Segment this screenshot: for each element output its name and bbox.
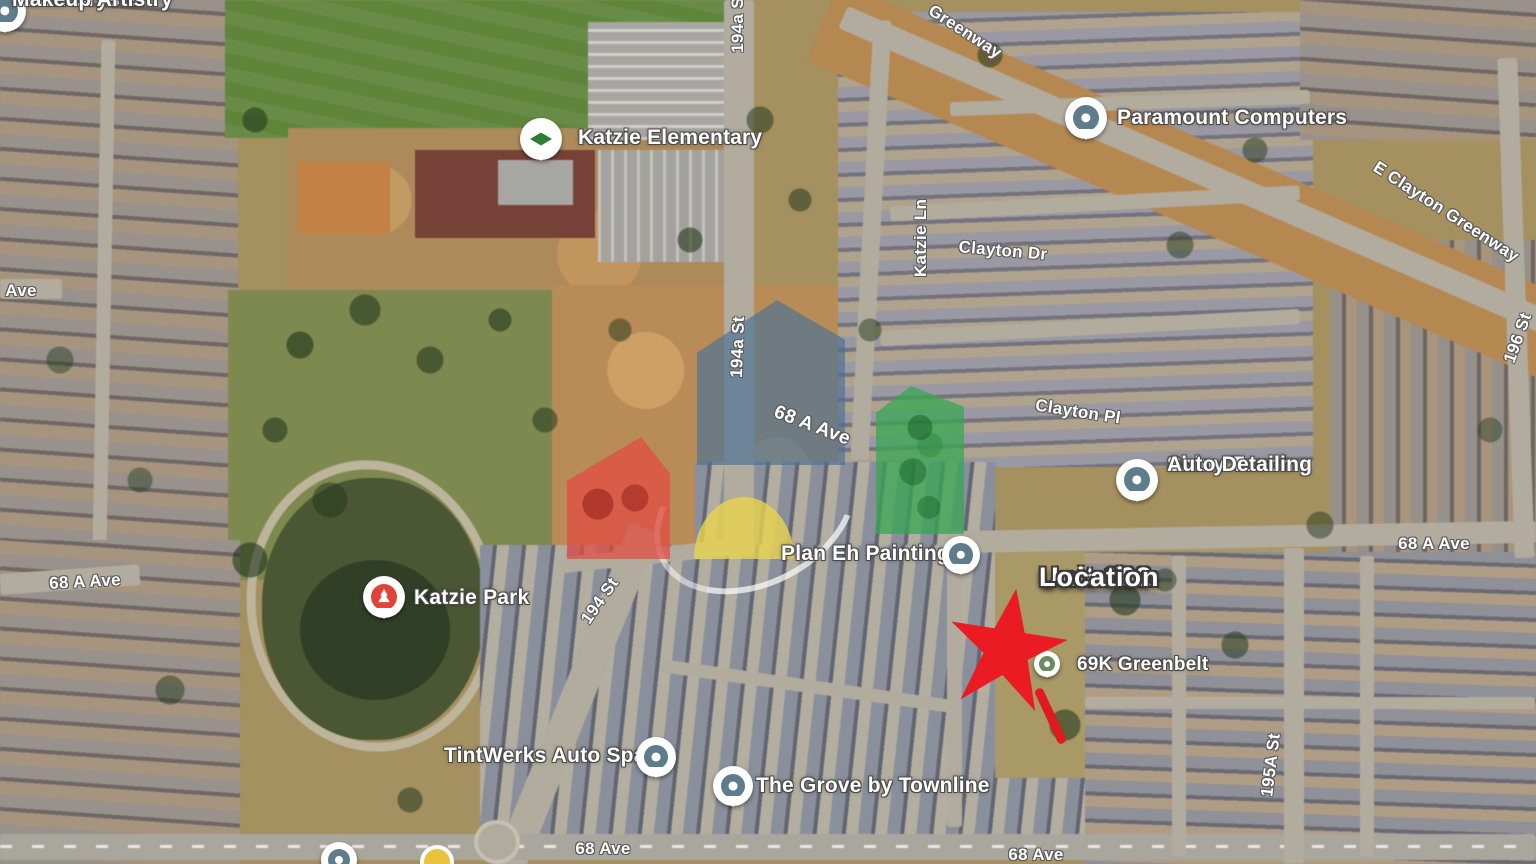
- place-dot-icon: [949, 543, 973, 567]
- map-road-se-h: [1085, 697, 1535, 709]
- katzie-park-label[interactable]: Katzie Park: [414, 586, 529, 610]
- map-road-se-v1: [1172, 556, 1186, 856]
- map-region-ne-housing: [838, 12, 1313, 467]
- map-region-playground: [298, 162, 390, 234]
- tintwerks-label[interactable]: TintWerks Auto Spa: [444, 744, 646, 768]
- map-road-left-vertical: [93, 40, 116, 550]
- place-dot-icon: [328, 849, 350, 864]
- unit-102-line2: Location: [1039, 561, 1160, 594]
- school-icon: [530, 133, 552, 146]
- shiny-touch-pin[interactable]: [1116, 459, 1158, 501]
- map-road-centerline: [0, 845, 1536, 848]
- map-region-field: [225, 0, 730, 138]
- park-icon: [371, 584, 397, 610]
- place-dot-icon: [1124, 467, 1150, 493]
- map-road-katzie-ln: [850, 20, 891, 460]
- road-label-194a-st-top: 194a St: [728, 0, 748, 53]
- greenbelt-label[interactable]: 69K Greenbelt: [1077, 653, 1208, 677]
- shiny-touch-line2: Auto Detailing: [1167, 453, 1312, 477]
- grove-townline-label[interactable]: The Grove by Townline: [756, 774, 990, 798]
- map-road-196-st: [1497, 58, 1534, 558]
- map-region-left-housing: [0, 0, 238, 864]
- map-region-se-housing: [1085, 552, 1536, 864]
- katzie-elementary-label[interactable]: Katzie Elementary: [578, 126, 762, 150]
- katzie-elementary-pin[interactable]: [520, 118, 562, 160]
- plan-eh-painting-label[interactable]: Plan Eh Painting: [781, 542, 950, 566]
- map-region-school-building: [415, 150, 595, 238]
- paramount-computers-label[interactable]: Paramount Computers: [1117, 106, 1347, 130]
- fawn-crystal-line2: Makeup Artistry: [12, 0, 173, 12]
- map-road-grove-entry: [560, 539, 741, 574]
- road-label-194a-st-mid: 194a St: [727, 316, 749, 378]
- greenbelt-pin[interactable]: [1034, 651, 1060, 677]
- map-road-194a-st: [724, 0, 754, 556]
- map-road-195a-st: [1284, 548, 1304, 864]
- map-road-68-ave: [0, 834, 1536, 860]
- map-road-194-st: [492, 522, 660, 864]
- map-road-e-clayton-greenway: [838, 6, 1536, 339]
- map-screenshot: Greenway 194a St 194a St Katzie Ln Clayt…: [0, 0, 1536, 864]
- map-road-clayton-dr: [890, 185, 1300, 221]
- road-label-ave-left: Ave: [5, 281, 36, 301]
- road-label-68-ave-left: 68 Ave: [575, 839, 630, 859]
- katzie-park-pin[interactable]: [363, 576, 405, 618]
- place-dot-icon: [721, 774, 746, 799]
- place-dot-icon: [644, 745, 669, 770]
- grove-townline-pin[interactable]: [713, 766, 753, 806]
- place-dot-icon: [1073, 105, 1099, 131]
- road-label-68-ave-right: 68 Ave: [1008, 845, 1063, 864]
- map-region-parking-side: [598, 150, 730, 262]
- map-region-school-grounds: [288, 128, 733, 308]
- map-region-grove-townhouses: [480, 545, 1095, 845]
- map-roundabout: [474, 820, 520, 864]
- map-road-grove-h: [661, 659, 960, 714]
- map-region-park: [228, 290, 573, 580]
- road-label-katzie-ln: Katzie Ln: [911, 199, 931, 277]
- tintwerks-pin[interactable]: [636, 737, 676, 777]
- map-region-parking-top: [588, 22, 726, 140]
- paramount-computers-pin[interactable]: [1065, 97, 1107, 139]
- road-label-68a-ave-right: 68 A Ave: [1398, 534, 1470, 554]
- tree-icon: [377, 589, 392, 605]
- plan-eh-painting-pin[interactable]: [942, 536, 980, 574]
- map-region-right-mid-housing: [1330, 240, 1536, 560]
- place-dot-icon: [1039, 656, 1055, 672]
- map-road-ne-2: [880, 309, 1300, 346]
- map-road-se-v2: [1360, 556, 1374, 856]
- road-label-68a-ave-left: 68 A Ave: [49, 570, 122, 594]
